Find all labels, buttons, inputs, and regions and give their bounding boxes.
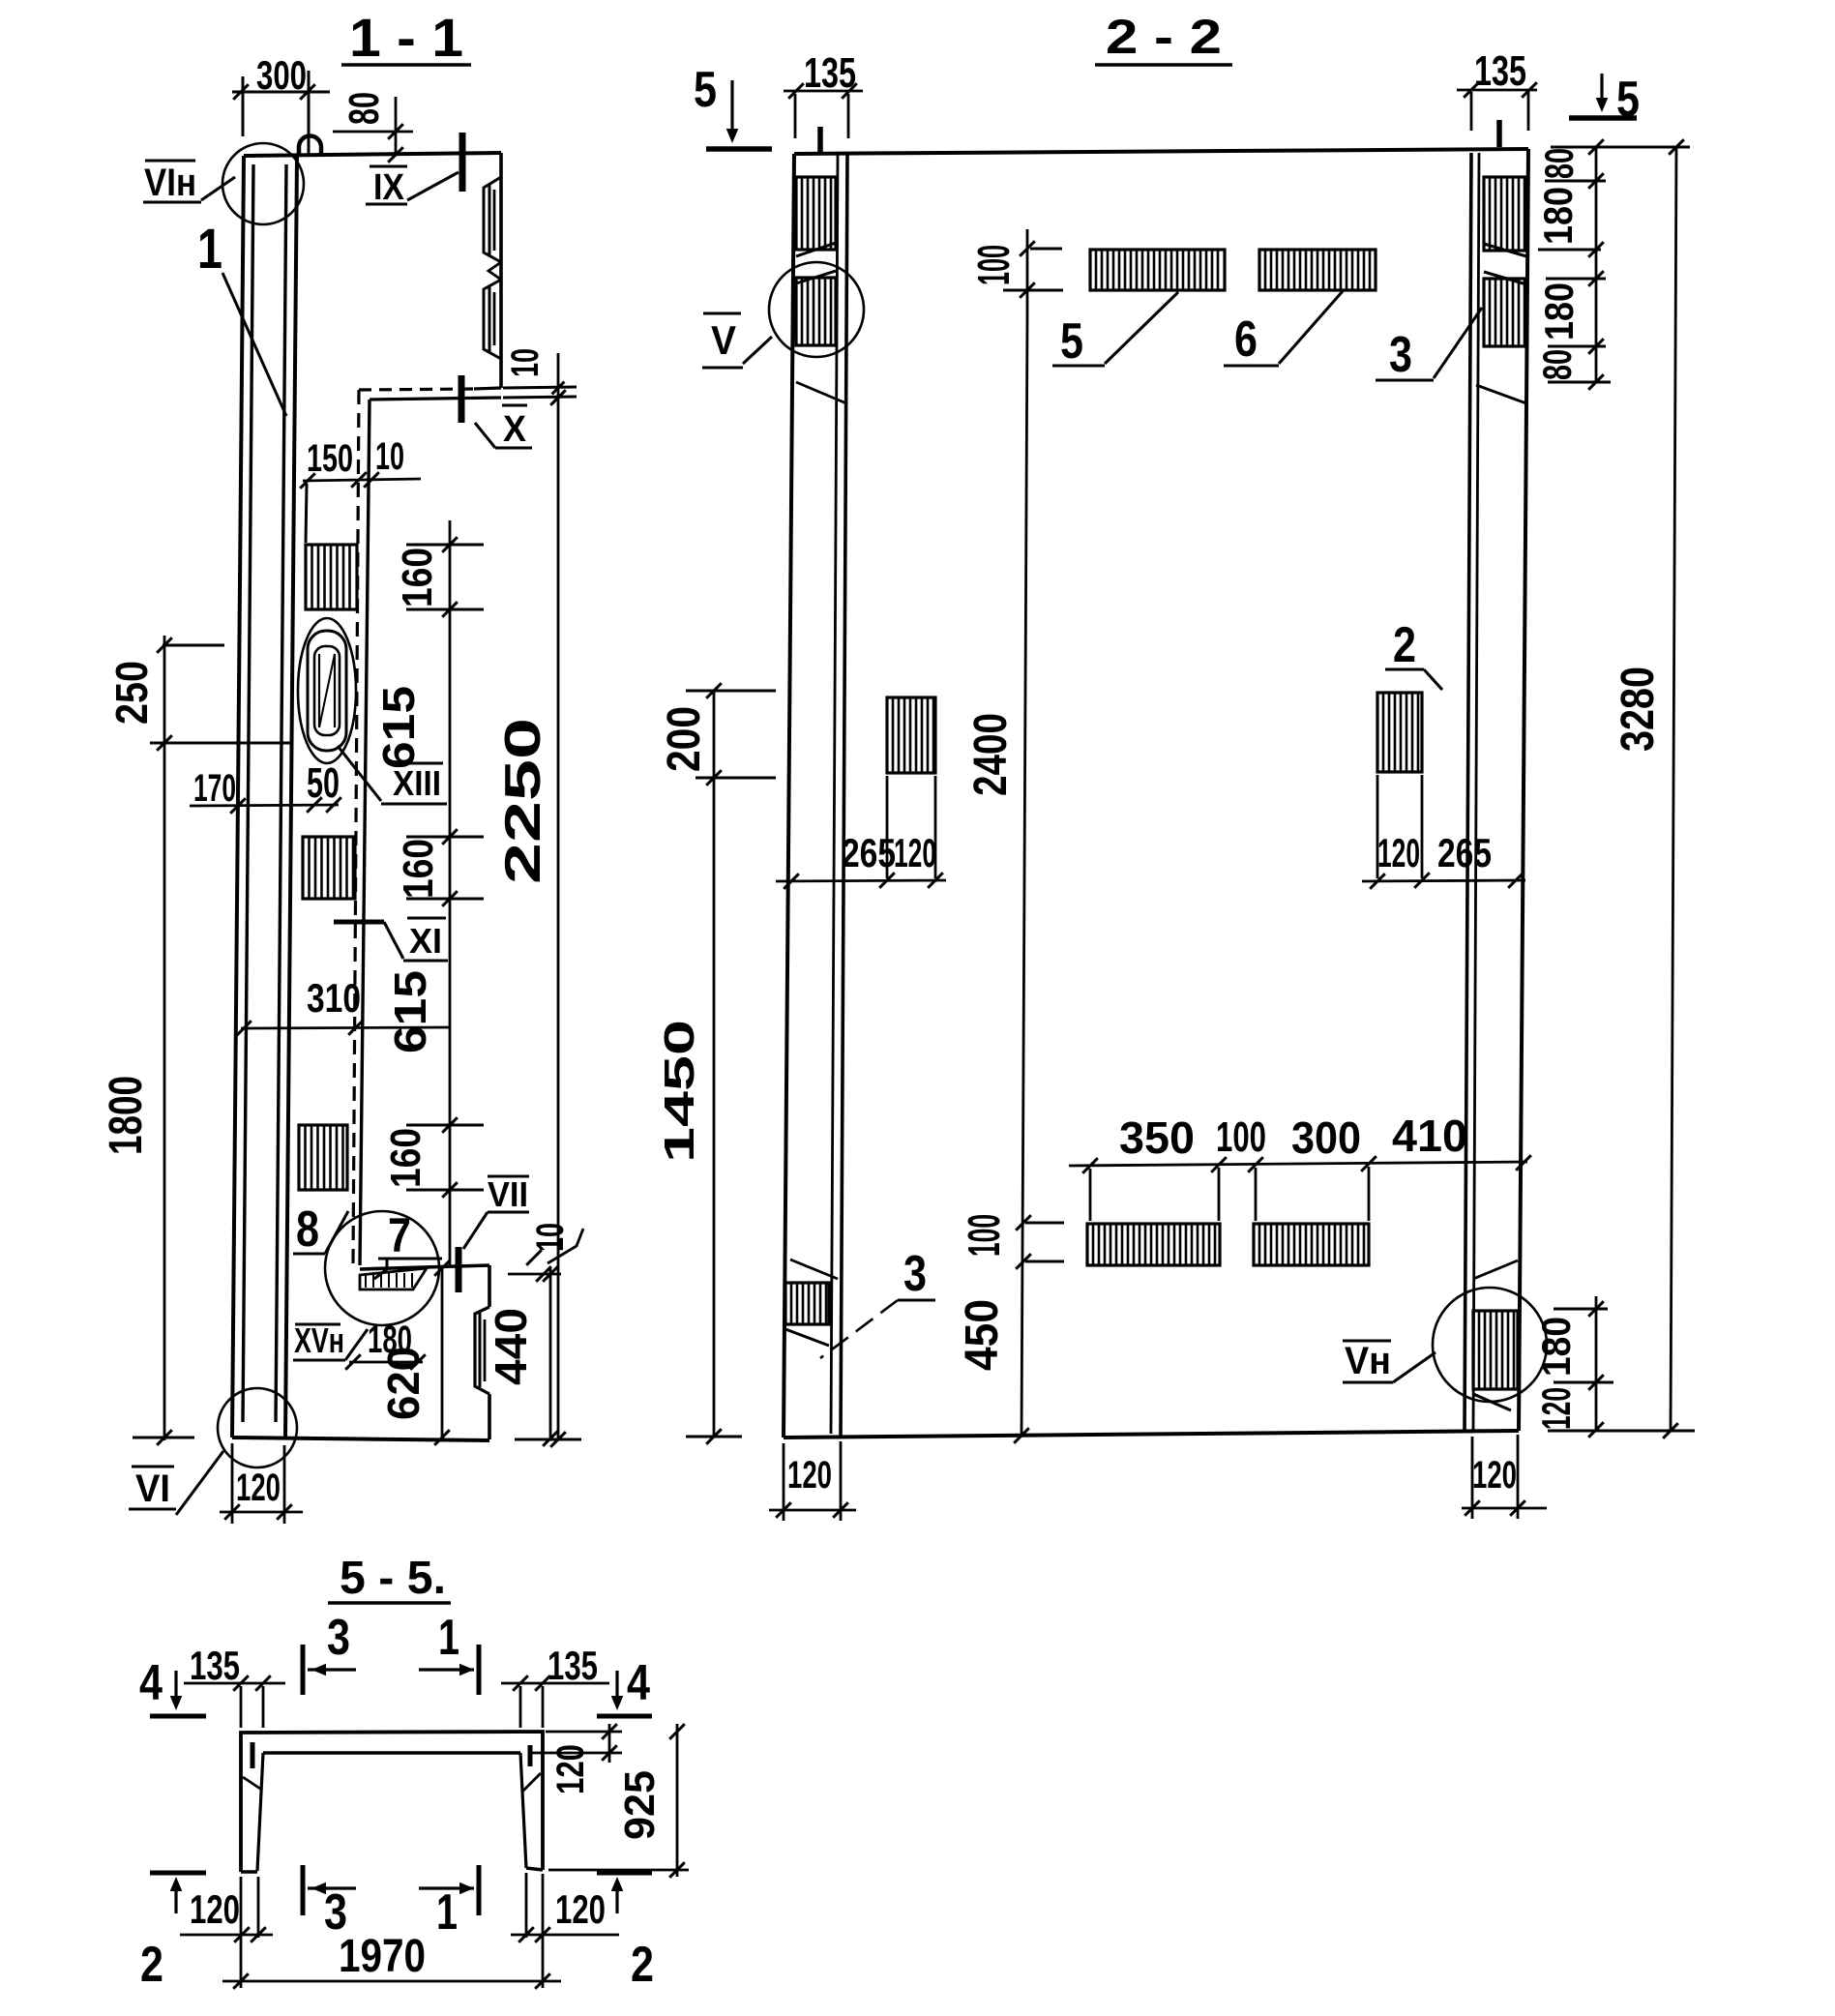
svg-text:120: 120 (555, 1886, 606, 1932)
svg-text:2: 2 (1393, 617, 1416, 673)
svg-text:100: 100 (1216, 1113, 1266, 1161)
svg-text:310: 310 (307, 975, 361, 1021)
svg-text:10: 10 (529, 1223, 572, 1252)
svg-text:200: 200 (659, 706, 710, 772)
svg-text:80: 80 (1536, 148, 1582, 179)
svg-text:135: 135 (548, 1643, 598, 1688)
svg-text:120: 120 (190, 1886, 240, 1932)
svg-text:4: 4 (139, 1655, 163, 1711)
svg-text:2: 2 (140, 1937, 163, 1993)
svg-text:160: 160 (394, 548, 441, 608)
svg-text:120: 120 (787, 1454, 832, 1497)
svg-text:1 - 1: 1 - 1 (349, 7, 463, 68)
svg-text:265: 265 (1437, 830, 1492, 875)
svg-text:160: 160 (395, 839, 442, 899)
svg-text:Vн: Vн (1345, 1340, 1391, 1382)
svg-text:450: 450 (957, 1299, 1008, 1371)
svg-text:7: 7 (388, 1208, 411, 1262)
svg-text:925: 925 (616, 1770, 664, 1840)
svg-text:XVн: XVн (294, 1320, 344, 1360)
svg-text:615: 615 (373, 686, 424, 769)
svg-text:120: 120 (1377, 830, 1420, 875)
svg-text:180: 180 (368, 1319, 412, 1361)
svg-text:10: 10 (504, 348, 547, 377)
svg-text:2400: 2400 (965, 713, 1017, 796)
svg-text:50: 50 (307, 759, 340, 807)
svg-text:3: 3 (1389, 327, 1412, 383)
svg-text:10: 10 (375, 435, 404, 478)
svg-text:410: 410 (1392, 1111, 1467, 1161)
svg-text:160: 160 (382, 1128, 429, 1188)
svg-text:180: 180 (1536, 282, 1582, 341)
svg-text:2 - 2: 2 - 2 (1106, 10, 1222, 64)
svg-text:1970: 1970 (339, 1931, 426, 1982)
svg-text:5 - 5.: 5 - 5. (340, 1553, 446, 1604)
svg-text:120: 120 (236, 1467, 281, 1509)
svg-text:100: 100 (959, 1214, 1009, 1257)
svg-text:180: 180 (1533, 1317, 1579, 1377)
svg-text:80: 80 (1534, 349, 1580, 380)
svg-text:3280: 3280 (1613, 667, 1664, 752)
svg-text:135: 135 (1474, 47, 1526, 95)
svg-text:1: 1 (436, 1884, 458, 1941)
svg-text:120: 120 (1533, 1387, 1579, 1430)
svg-text:IX: IX (373, 167, 405, 208)
svg-text:XI: XI (409, 921, 442, 961)
svg-text:80: 80 (340, 92, 388, 125)
svg-text:1800: 1800 (101, 1076, 152, 1155)
svg-text:2: 2 (631, 1937, 654, 1993)
svg-text:V: V (711, 317, 736, 363)
svg-text:2250: 2250 (495, 718, 551, 884)
svg-text:1: 1 (197, 218, 222, 281)
svg-text:4: 4 (627, 1655, 650, 1711)
svg-text:VI: VI (135, 1468, 170, 1510)
svg-text:120: 120 (894, 830, 936, 875)
svg-text:615: 615 (385, 970, 435, 1053)
svg-text:100: 100 (968, 245, 1019, 285)
svg-text:8: 8 (296, 1201, 319, 1258)
svg-text:VII: VII (488, 1174, 528, 1214)
svg-text:180: 180 (1535, 187, 1581, 245)
svg-text:300: 300 (1291, 1112, 1361, 1163)
svg-text:170: 170 (193, 767, 236, 810)
svg-text:250: 250 (106, 661, 157, 725)
svg-text:5: 5 (1060, 313, 1083, 370)
svg-text:120: 120 (1472, 1454, 1517, 1497)
svg-text:1450: 1450 (656, 1020, 703, 1163)
svg-text:350: 350 (1119, 1112, 1195, 1163)
svg-text:3: 3 (327, 1610, 350, 1666)
svg-text:3: 3 (903, 1246, 927, 1302)
svg-text:6: 6 (1234, 311, 1258, 368)
svg-text:VIн: VIн (144, 162, 196, 204)
svg-text:440: 440 (486, 1308, 536, 1385)
svg-text:5: 5 (694, 62, 717, 118)
svg-text:1: 1 (438, 1610, 459, 1666)
svg-text:135: 135 (190, 1643, 240, 1688)
svg-text:X: X (503, 409, 527, 450)
